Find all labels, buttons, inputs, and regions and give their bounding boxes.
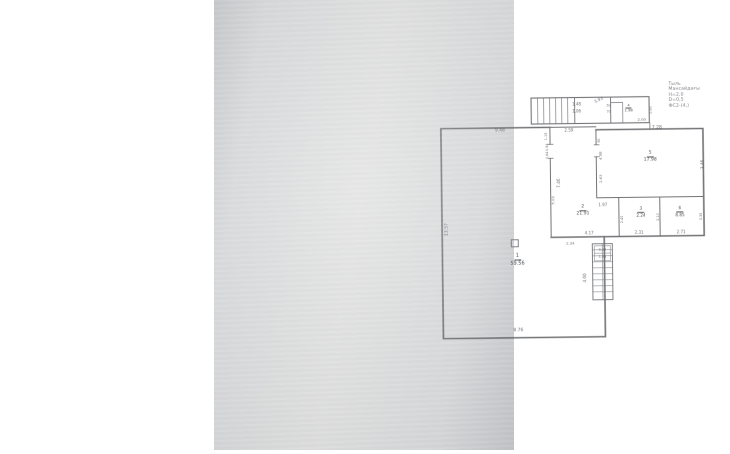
dimension-label: 0.94 — [545, 144, 549, 152]
dimension-label: 0.64 — [545, 152, 549, 160]
floor-plan-drawing — [211, 0, 730, 454]
outer-wall-left-room — [441, 127, 606, 339]
dimension-label: 2.31 — [635, 230, 644, 235]
entry-closet — [611, 102, 623, 123]
dimension-label: 2.00 — [638, 117, 647, 122]
room-area: 21.91 — [576, 211, 589, 217]
dimension-label: 7.46 — [556, 179, 561, 188]
stair-treads-top — [538, 98, 568, 124]
room-area: 1.98 — [624, 109, 633, 114]
room-area: 17.98 — [644, 157, 657, 163]
wall-room1-room2 — [550, 127, 551, 237]
dimension-label: 3.46 — [700, 160, 705, 169]
dimension-label: 3.35 — [699, 213, 703, 221]
dimension-label: 7.28 — [652, 125, 662, 130]
room-label: 68.85 — [675, 206, 684, 217]
dimension-label: 2.34 — [566, 241, 575, 246]
wall-room5-bottom — [597, 196, 704, 197]
room-label: 32.24 — [636, 207, 645, 218]
dimension-label: 90 — [597, 139, 601, 143]
dimension-label: 4.17 — [585, 230, 594, 235]
dimension-label: 2.71 — [677, 229, 686, 234]
dimension-label: 2.63 — [598, 174, 603, 183]
room-label: 159.56 — [510, 253, 524, 266]
dimension-label: 70 — [606, 110, 610, 114]
dimension-label: 4.98 — [598, 151, 603, 160]
door-jambs — [548, 144, 599, 159]
room-area: 8.85 — [675, 212, 684, 217]
dimension-label: 13.57 — [445, 223, 450, 236]
dimension-label: 0.90 — [649, 106, 653, 114]
floor-plan-photo: 9.482.597.285.931.481.0650702.000.901.19… — [214, 0, 514, 450]
stair-center-rail — [602, 244, 603, 300]
room-area: 59.56 — [510, 260, 524, 266]
dimension-label: 2.59 — [564, 128, 573, 133]
dimension-label: 1.06 — [572, 108, 581, 113]
dimension-label: 5.03 — [550, 196, 555, 205]
dimension-label: 8.76 — [513, 328, 523, 333]
room-label: 221.91 — [576, 205, 589, 216]
floor-plan: 9.482.597.285.931.481.0650702.000.901.19… — [211, 1, 516, 454]
dimension-label: 1.48 — [572, 101, 581, 106]
dimension-label: 2.40 — [620, 216, 624, 224]
dimension-label: 4.60 — [582, 273, 587, 282]
outer-wall-right-section — [550, 128, 704, 237]
column-symbol — [511, 240, 518, 247]
dimension-label: 0.24 — [599, 248, 607, 252]
dimension-label: 2.10 — [656, 213, 660, 221]
dimension-label: 50 — [606, 104, 610, 108]
room-label: 41.98 — [624, 103, 633, 113]
title-block-line: ФС2-(4,) — [669, 103, 701, 109]
dimension-label: 1.19 — [544, 133, 548, 141]
title-block: Тыль Мансайдағы Н=2,0 D=0,5 ФС2-(4,) — [668, 82, 700, 109]
dimension-label: 9.48 — [495, 128, 505, 133]
room-area: 2.24 — [636, 212, 645, 217]
dimension-label: 1.98 — [599, 255, 607, 259]
dimension-label: 1.97 — [598, 202, 607, 207]
room-label: 517.98 — [644, 151, 657, 162]
